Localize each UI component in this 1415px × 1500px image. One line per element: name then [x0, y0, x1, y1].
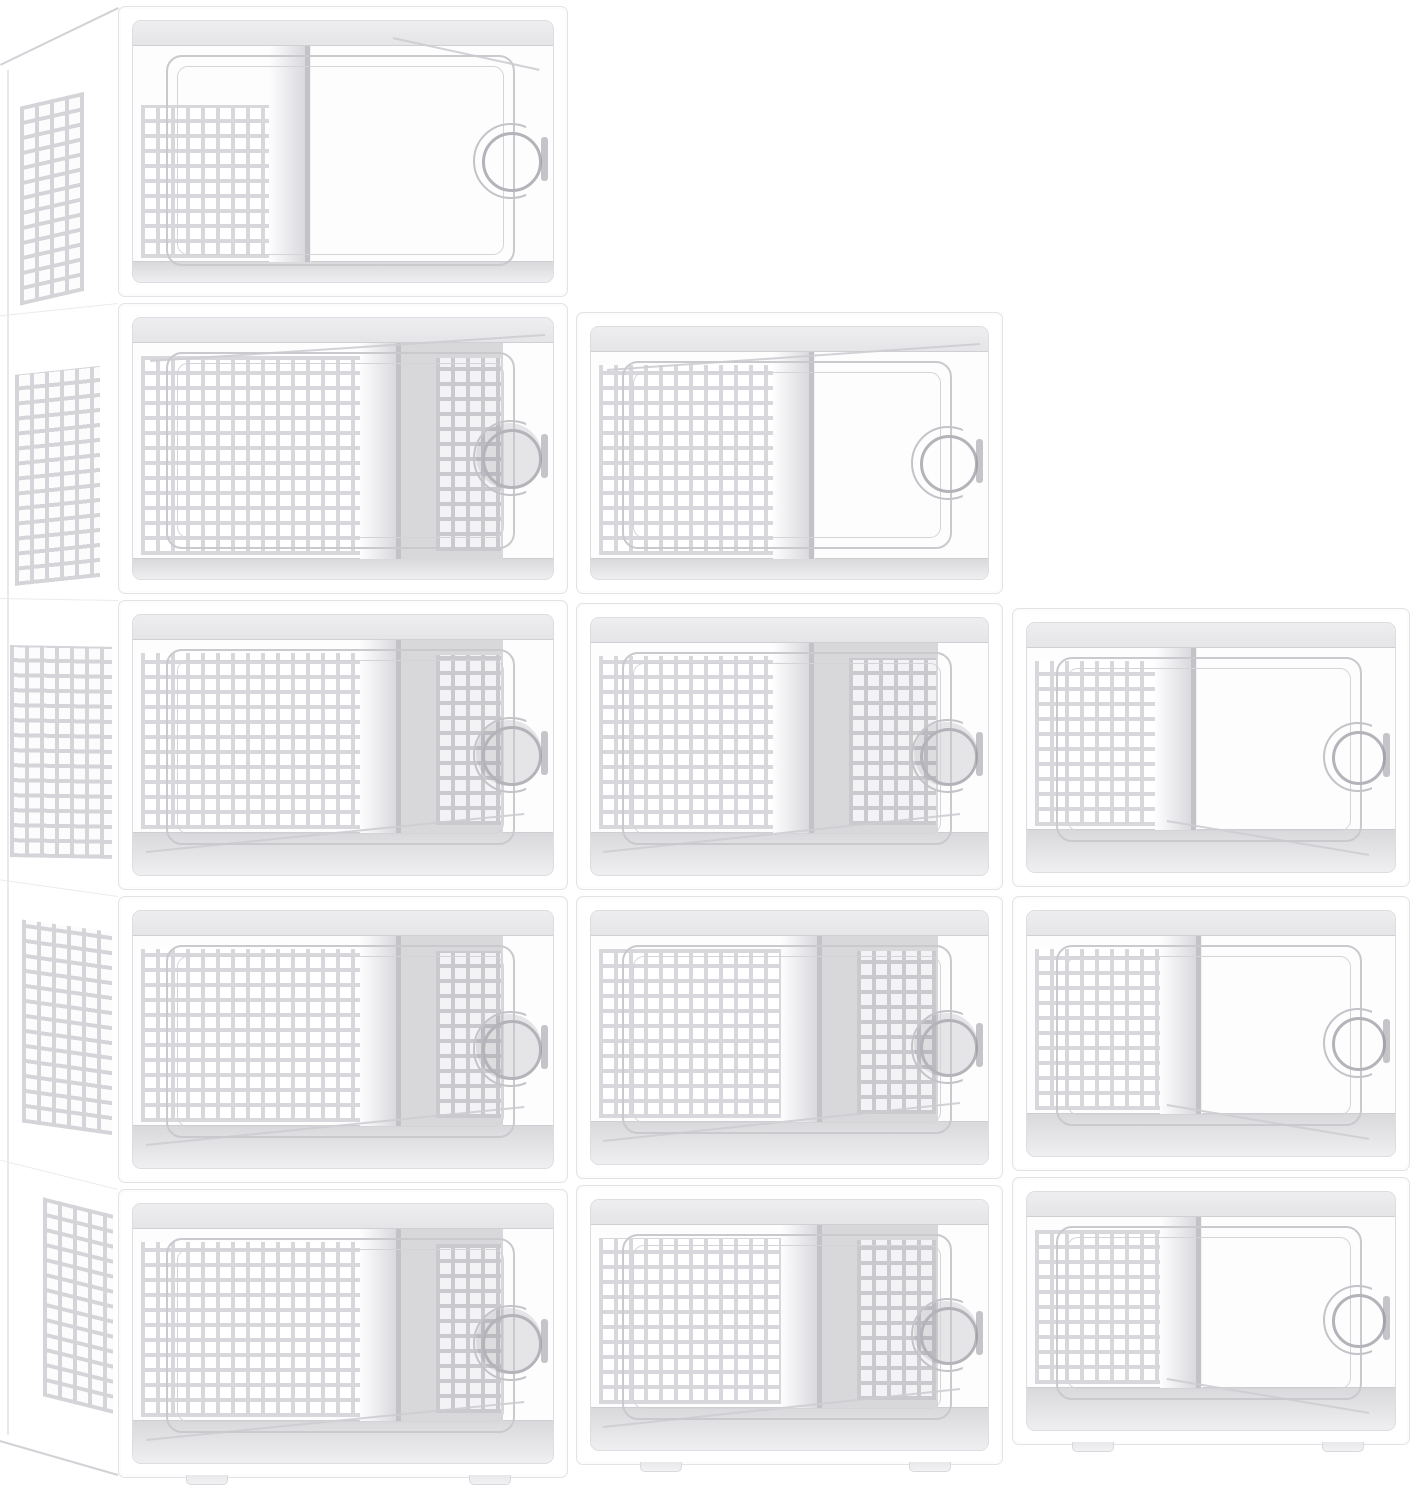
- top-rail-shading: [1027, 623, 1395, 648]
- stacking-foot-2: [1322, 1442, 1364, 1452]
- door-inner-edge: [177, 660, 504, 834]
- pull-handle: [1332, 731, 1386, 785]
- side-panel-row-3: [0, 598, 118, 891]
- door-latch: [541, 1319, 548, 1363]
- box-interior: [132, 317, 554, 580]
- box-interior: [590, 910, 989, 1165]
- shoe-box-middle-row3: [576, 603, 1003, 890]
- top-rail-shading: [591, 618, 988, 643]
- side-panel-row-5: [0, 1160, 118, 1479]
- drop-front-door: [622, 945, 952, 1134]
- drop-front-door: [622, 361, 952, 549]
- drop-front-door: [1056, 945, 1362, 1126]
- box-interior: [1026, 1191, 1396, 1431]
- pull-handle: [920, 1019, 978, 1077]
- shoe-box-right-row3: [1012, 608, 1410, 887]
- door-latch: [541, 731, 548, 775]
- box-interior: [132, 614, 554, 876]
- shoe-box-stack-photo: [0, 0, 1415, 1500]
- side-back-edge: [7, 70, 9, 1435]
- perforated-side-panel: [20, 92, 84, 306]
- door-latch: [1383, 1296, 1390, 1340]
- box-interior: [590, 326, 989, 580]
- top-rail-shading: [591, 1200, 988, 1225]
- pull-handle: [920, 435, 978, 493]
- drop-front-door: [622, 1234, 952, 1420]
- top-rail-shading: [133, 911, 553, 936]
- door-inner-edge: [633, 663, 941, 834]
- drop-front-door: [1056, 1226, 1362, 1400]
- top-rail-shading: [591, 327, 988, 352]
- box-interior: [590, 617, 989, 876]
- floor-shading: [133, 558, 553, 579]
- drop-front-door: [166, 1238, 515, 1433]
- shoe-box-middle-row4: [576, 896, 1003, 1179]
- top-rail-shading: [133, 318, 553, 343]
- shoe-box-left-row3: [118, 600, 568, 890]
- box-interior: [1026, 622, 1396, 873]
- shoe-box-right-row4: [1012, 896, 1410, 1171]
- door-latch: [976, 1023, 983, 1067]
- pull-handle: [482, 1314, 542, 1374]
- perforated-side-panel: [10, 645, 112, 859]
- door-inner-edge: [177, 1249, 504, 1422]
- door-inner-edge: [1067, 956, 1351, 1115]
- drop-front-door: [166, 945, 515, 1138]
- shoe-box-right-row5: [1012, 1177, 1410, 1445]
- door-latch: [976, 1311, 983, 1355]
- perforated-side-panel: [43, 1197, 113, 1413]
- drop-front-door: [166, 55, 515, 266]
- pull-handle: [1332, 1294, 1386, 1348]
- door-latch: [541, 1025, 548, 1069]
- shoe-box-left-row2: [118, 303, 568, 594]
- top-rail-shading: [133, 615, 553, 640]
- side-panel-row-4: [0, 879, 118, 1184]
- shoe-box-left-row5: [118, 1189, 568, 1478]
- shoe-box-left-row1: [118, 6, 568, 297]
- drop-front-door: [166, 649, 515, 845]
- door-latch: [1383, 733, 1390, 777]
- door-latch: [976, 732, 983, 776]
- door-inner-edge: [633, 372, 941, 538]
- pull-handle: [920, 1307, 978, 1365]
- shoe-box-middle-row5: [576, 1185, 1003, 1465]
- box-interior: [132, 1203, 554, 1464]
- top-rail-shading: [591, 911, 988, 936]
- door-inner-edge: [177, 66, 504, 255]
- side-panel-row-1: [0, 6, 118, 324]
- door-inner-edge: [177, 363, 504, 538]
- door-latch: [1383, 1019, 1390, 1063]
- top-rail-shading: [1027, 1192, 1395, 1217]
- box-interior: [132, 910, 554, 1169]
- floor-shading: [591, 558, 988, 579]
- door-latch: [976, 439, 983, 483]
- door-inner-edge: [633, 956, 941, 1123]
- stacking-foot-1: [640, 1462, 682, 1472]
- top-rail-shading: [133, 1204, 553, 1229]
- drop-front-door: [1056, 657, 1362, 842]
- pull-handle: [482, 429, 542, 489]
- drop-front-door: [622, 652, 952, 845]
- box-interior: [132, 20, 554, 283]
- top-rail-shading: [133, 21, 553, 46]
- door-inner-edge: [1067, 668, 1351, 831]
- door-latch: [541, 434, 548, 478]
- perforated-side-panel: [22, 920, 112, 1136]
- pull-handle: [1332, 1017, 1386, 1071]
- top-rail-shading: [1027, 911, 1395, 936]
- stacking-foot-2: [469, 1475, 511, 1485]
- pull-handle: [482, 1020, 542, 1080]
- stacking-foot-1: [1072, 1442, 1114, 1452]
- door-inner-edge: [1067, 1237, 1351, 1389]
- door-inner-edge: [177, 956, 504, 1127]
- stacking-foot-1: [186, 1475, 228, 1485]
- side-panel-row-2: [0, 303, 118, 607]
- pull-handle: [920, 728, 978, 786]
- shoe-box-middle-row2: [576, 312, 1003, 594]
- pull-handle: [482, 132, 542, 192]
- box-interior: [590, 1199, 989, 1451]
- door-latch: [541, 137, 548, 181]
- shoe-box-left-row4: [118, 896, 568, 1183]
- door-inner-edge: [633, 1245, 941, 1409]
- box-interior: [1026, 910, 1396, 1157]
- pull-handle: [482, 726, 542, 786]
- perforated-side-panel: [15, 366, 100, 586]
- stacking-foot-2: [909, 1462, 951, 1472]
- drop-front-door: [166, 352, 515, 549]
